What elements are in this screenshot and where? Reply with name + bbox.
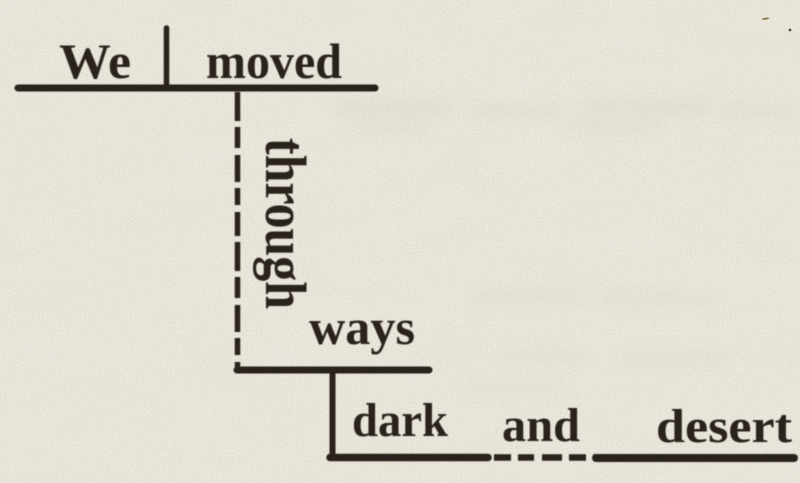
svg-text:ways: ways [309, 299, 415, 355]
svg-text:desert: desert [656, 400, 792, 453]
svg-text:We: We [59, 33, 131, 89]
svg-text:through: through [253, 138, 318, 309]
svg-text:moved: moved [206, 33, 342, 89]
svg-text:dark: dark [352, 394, 448, 447]
svg-text:and: and [502, 399, 580, 452]
